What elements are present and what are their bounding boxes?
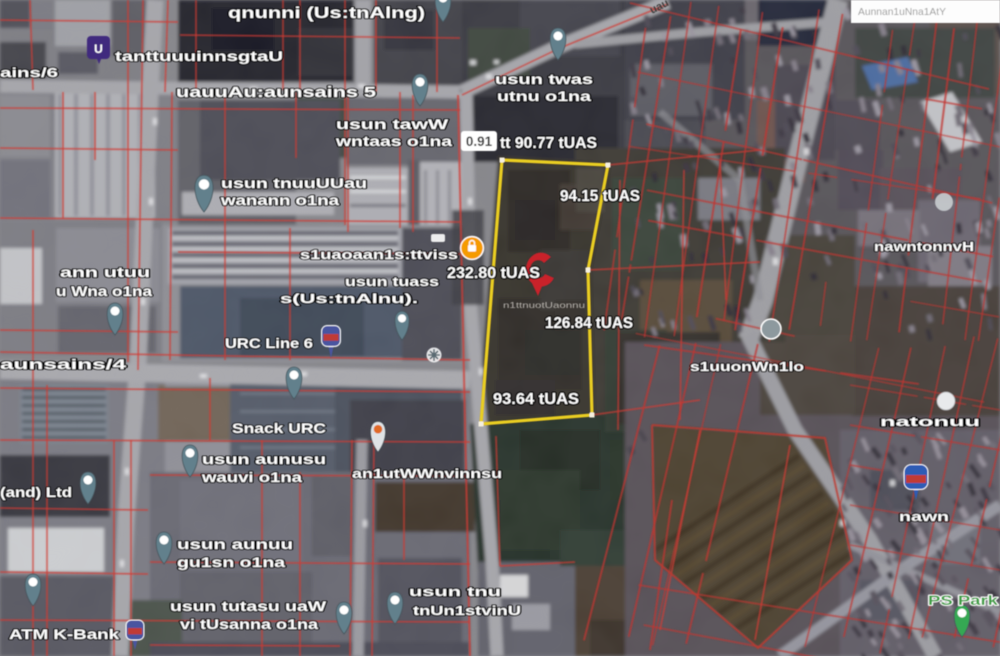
svg-text:PS Park: PS Park: [928, 592, 998, 608]
svg-text:usun tawW: usun tawW: [336, 117, 448, 132]
svg-text:tanttuuuinnsgtaU: tanttuuuinnsgtaU: [115, 48, 283, 64]
svg-text:u Wna o1na: u Wna o1na: [56, 284, 153, 299]
svg-text:natonuu: natonuu: [880, 414, 980, 429]
svg-text:Aunnan1uNna1AtY: Aunnan1uNna1AtY: [858, 6, 946, 18]
svg-text:wauvi o1na: wauvi o1na: [201, 470, 303, 485]
svg-text:U: U: [94, 42, 103, 56]
svg-text:s1uaoaan1s:ttviss: s1uaoaan1s:ttviss: [300, 247, 458, 262]
svg-text:usun tuass: usun tuass: [345, 274, 439, 289]
svg-text:ATM K-Bank: ATM K-Bank: [9, 626, 119, 642]
svg-text:nawntonnvH: nawntonnvH: [874, 239, 974, 254]
svg-text:n1ttnuotUaonnu: n1ttnuotUaonnu: [503, 300, 585, 310]
svg-text:s(Us:tnAlnu).: s(Us:tnAlnu).: [280, 291, 418, 306]
svg-text:usun aunuu: usun aunuu: [177, 537, 293, 552]
svg-text:usun tnu: usun tnu: [409, 584, 501, 599]
svg-text:ann utuu: ann utuu: [60, 265, 150, 280]
svg-text:wntaas o1na: wntaas o1na: [335, 134, 453, 149]
svg-text:ains/6: ains/6: [0, 65, 58, 80]
svg-text:URC Line 6: URC Line 6: [225, 335, 313, 351]
svg-text:232.80 tUAS: 232.80 tUAS: [447, 265, 540, 282]
svg-text:an1utWWnvinnsu: an1utWWnvinnsu: [352, 466, 502, 481]
svg-text:aunsains/4: aunsains/4: [0, 357, 127, 372]
svg-text:vi tUsanna o1na: vi tUsanna o1na: [180, 617, 319, 632]
svg-text:(and) Ltd: (and) Ltd: [0, 485, 72, 500]
svg-text:usun aunusu: usun aunusu: [202, 452, 326, 467]
svg-text:usun tutasu uaW: usun tutasu uaW: [170, 599, 326, 614]
svg-text:nawn: nawn: [899, 509, 949, 524]
svg-text:uauuAu:aunsains 5: uauuAu:aunsains 5: [176, 84, 376, 101]
svg-text:Snack URC: Snack URC: [232, 420, 326, 436]
svg-text:utnu o1na: utnu o1na: [497, 89, 592, 104]
svg-text:s1uuonWn1lo: s1uuonWn1lo: [690, 359, 804, 374]
svg-text:94.15 tUAS: 94.15 tUAS: [560, 188, 640, 205]
svg-text:93.64 tUAS: 93.64 tUAS: [493, 391, 579, 408]
svg-text:usun twas: usun twas: [495, 72, 593, 87]
svg-text:usun tnuuUUau: usun tnuuUUau: [221, 176, 367, 191]
svg-text:gu1sn o1na: gu1sn o1na: [177, 555, 286, 570]
svg-text:0.91: 0.91: [466, 134, 493, 149]
svg-text:qnunni (Us:tnAlng): qnunni (Us:tnAlng): [228, 5, 425, 22]
svg-text:tt 90.77 tUAS: tt 90.77 tUAS: [500, 135, 597, 152]
svg-text:wanann o1na: wanann o1na: [220, 193, 340, 208]
svg-text:126.84 tUAS: 126.84 tUAS: [545, 315, 633, 332]
svg-text:tnUn1stvinU: tnUn1stvinU: [413, 603, 521, 618]
